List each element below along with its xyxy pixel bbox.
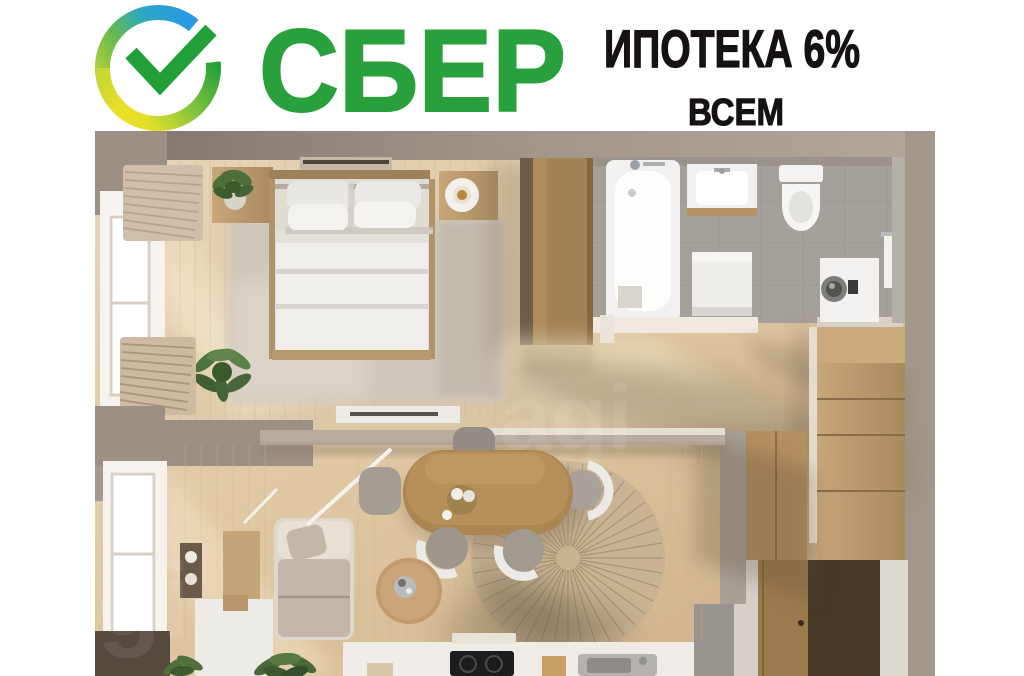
svg-text:СБЕР: СБЕР xyxy=(259,5,566,136)
svg-text:gi: gi xyxy=(97,542,190,659)
svg-text:agi: agi xyxy=(500,367,633,469)
svg-text:ИПОТЕКА 6%: ИПОТЕКА 6% xyxy=(604,20,860,79)
svg-text:ВСЕМ: ВСЕМ xyxy=(688,92,784,134)
